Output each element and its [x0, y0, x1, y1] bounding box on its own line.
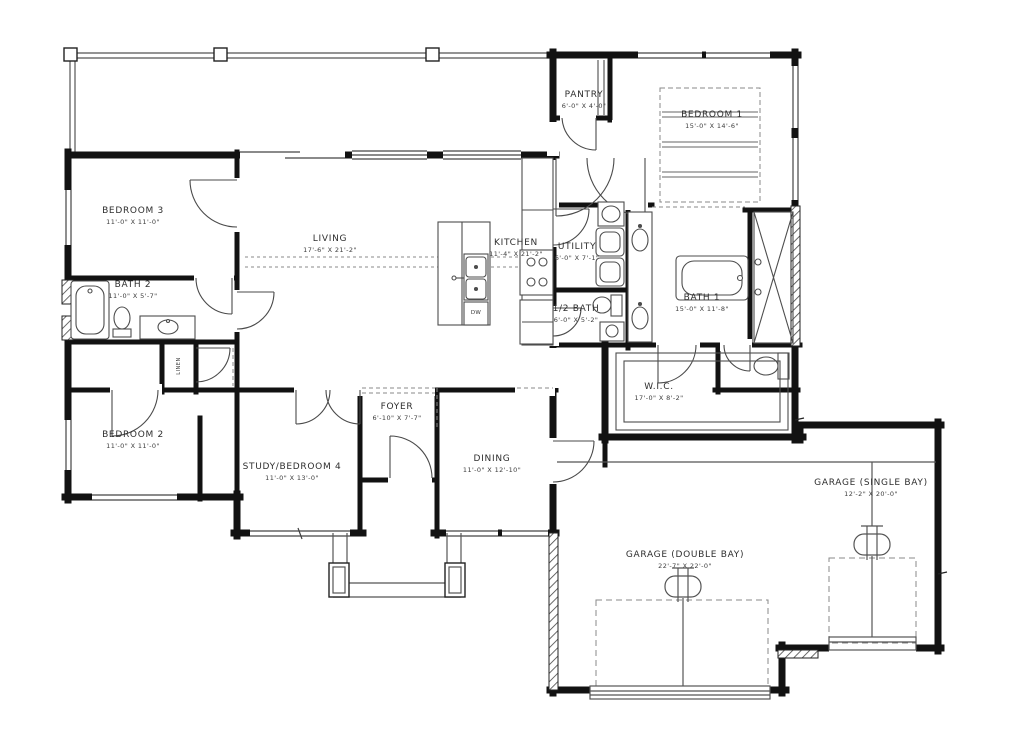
room-dims-living: 17'-6" X 21'-2" — [303, 246, 357, 254]
door-bedroom3 — [190, 180, 237, 227]
room-name-utility: UTILITY — [555, 242, 600, 254]
room-dims-garage-double: 22'-7" X 22'-0" — [626, 562, 744, 570]
room-label-bedroom1: BEDROOM 1 15'-0" X 14'-6" — [681, 110, 743, 130]
bath1-shower — [754, 212, 793, 343]
room-label-pantry: PANTRY 6'-0" X 4'-0" — [562, 90, 607, 110]
room-name-bedroom1: BEDROOM 1 — [681, 110, 743, 122]
room-label-utility: UTILITY 6'-0" X 7'-1" — [555, 242, 600, 262]
room-dims-bath2: 11'-0" X 5'-7" — [108, 292, 157, 300]
room-name-living: LIVING — [303, 234, 357, 246]
garage-opener-icon — [854, 534, 890, 555]
room-label-kitchen: KITCHEN 11'-4" X 21'-2" — [489, 238, 543, 258]
room-label-foyer: FOYER 6'-10" X 7'-7" — [372, 402, 421, 422]
front-door — [390, 436, 432, 478]
garage-door-double — [590, 568, 770, 699]
room-label-dining: DINING 11'-0" X 12'-10" — [463, 454, 521, 474]
porch-column — [329, 563, 349, 597]
room-name-garage-single: GARAGE (SINGLE BAY) — [814, 478, 928, 490]
half-bath-sink — [600, 322, 624, 341]
room-label-wic: W.I.C. 17'-0" X 8'-2" — [634, 382, 683, 402]
bath2-toilet — [113, 307, 131, 337]
room-dims-bedroom2: 11'-0" X 11'-0" — [102, 442, 164, 450]
room-label-garage-double: GARAGE (DOUBLE BAY) 22'-7" X 22'-0" — [626, 550, 744, 570]
room-dims-utility: 6'-0" X 7'-1" — [555, 254, 600, 262]
room-dims-kitchen: 11'-4" X 21'-2" — [489, 250, 543, 258]
room-dims-bedroom1: 15'-0" X 14'-6" — [681, 122, 743, 130]
dishwasher-label: DW — [471, 310, 481, 316]
patio-post — [64, 48, 77, 61]
room-name-bath2: BATH 2 — [108, 280, 157, 292]
room-label-bedroom3: BEDROOM 3 11'-0" X 11'-0" — [102, 206, 164, 226]
patio-post — [426, 48, 439, 61]
room-dims-garage-single: 12'-2" X 20'-0" — [814, 490, 928, 498]
door-linen — [196, 348, 230, 382]
front-porch — [329, 533, 465, 597]
room-label-bath2: BATH 2 11'-0" X 5'-7" — [108, 280, 157, 300]
room-name-kitchen: KITCHEN — [489, 238, 543, 250]
garage-details — [557, 418, 947, 699]
room-label-living: LIVING 17'-6" X 21'-2" — [303, 234, 357, 254]
kitchen-island — [438, 222, 490, 325]
doors — [112, 118, 750, 482]
room-name-bath1: BATH 1 — [675, 293, 729, 305]
room-label-half-bath: 1/2 BATH 6'-0" X 5'-2" — [553, 304, 600, 324]
room-label-study: STUDY/BEDROOM 4 11'-0" X 13'-0" — [243, 462, 342, 482]
room-dims-foyer: 6'-10" X 7'-7" — [372, 414, 421, 422]
washer-dryer — [596, 228, 624, 286]
bath2-tub — [71, 281, 109, 339]
bath1-vanity — [628, 212, 652, 342]
porch-column — [445, 563, 465, 597]
room-name-dining: DINING — [463, 454, 521, 466]
room-dims-wic: 17'-0" X 8'-2" — [634, 394, 683, 402]
room-dims-dining: 11'-0" X 12'-10" — [463, 466, 521, 474]
room-dims-pantry: 6'-0" X 4'-0" — [562, 102, 607, 110]
bath2-sink — [140, 316, 195, 339]
room-dims-bath1: 15'-0" X 11'-8" — [675, 305, 729, 313]
room-name-wic: W.I.C. — [634, 382, 683, 394]
rear-patio — [64, 48, 551, 152]
room-label-linen: LINEN — [176, 357, 182, 374]
room-name-foyer: FOYER — [372, 402, 421, 414]
utility-sink — [598, 202, 624, 226]
floor-plan: LIVING 17'-6" X 21'-2" KITCHEN 11'-4" X … — [0, 0, 1024, 734]
floor-plan-drawing — [0, 0, 1024, 734]
room-dims-study: 11'-0" X 13'-0" — [243, 474, 342, 482]
room-dims-bedroom3: 11'-0" X 11'-0" — [102, 218, 164, 226]
room-name-study: STUDY/BEDROOM 4 — [243, 462, 342, 474]
wc-toilet — [754, 353, 789, 379]
room-name-bedroom3: BEDROOM 3 — [102, 206, 164, 218]
patio-post — [214, 48, 227, 61]
room-name-half-bath: 1/2 BATH — [553, 304, 600, 316]
room-name-garage-double: GARAGE (DOUBLE BAY) — [626, 550, 744, 562]
room-label-bath1: BATH 1 15'-0" X 11'-8" — [675, 293, 729, 313]
room-label-garage-single: GARAGE (SINGLE BAY) 12'-2" X 20'-0" — [814, 478, 928, 498]
room-label-bedroom2: BEDROOM 2 11'-0" X 11'-0" — [102, 430, 164, 450]
garage-opener-icon — [665, 576, 701, 597]
room-dims-half-bath: 6'-0" X 5'-2" — [553, 316, 600, 324]
room-name-bedroom2: BEDROOM 2 — [102, 430, 164, 442]
room-name-pantry: PANTRY — [562, 90, 607, 102]
